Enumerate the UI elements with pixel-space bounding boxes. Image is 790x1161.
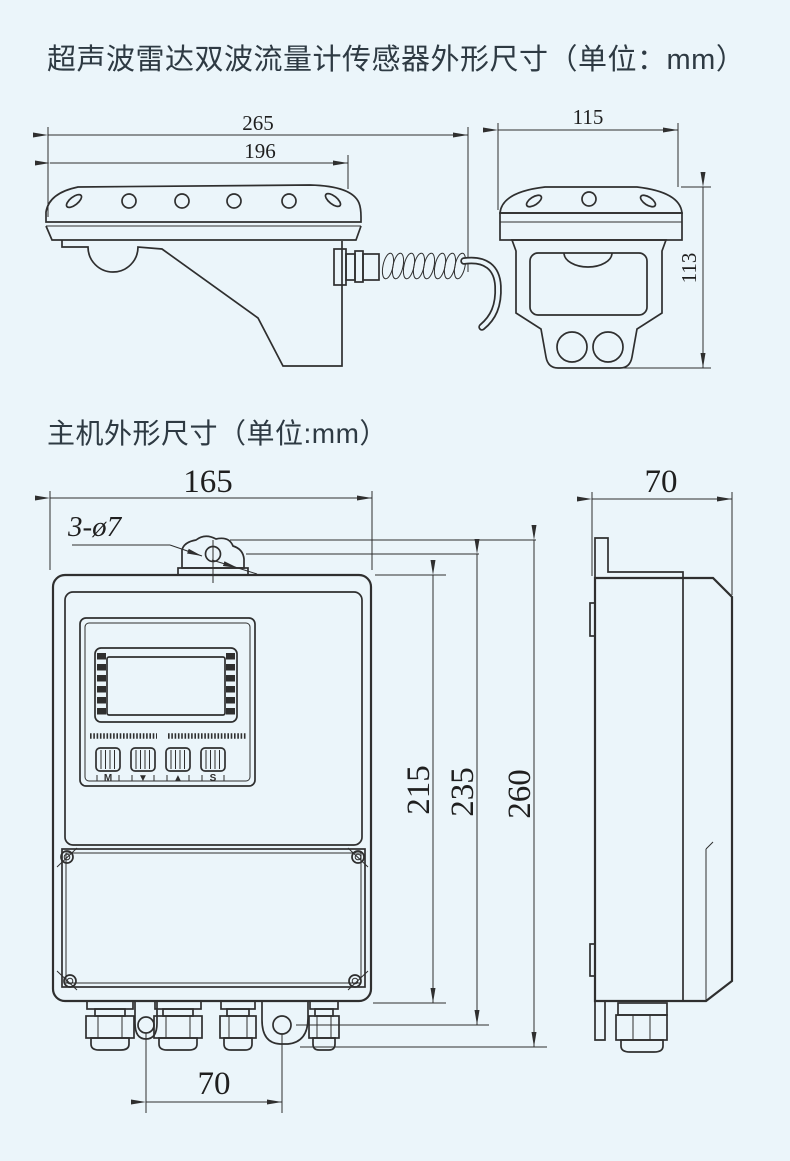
dim-sensor-front-width: 115 [573, 105, 604, 129]
compartment-cover [62, 849, 365, 987]
keypad: M ▼ ▲ S [96, 748, 225, 784]
side-bottom-bracket [595, 1001, 605, 1040]
cap-slot-hole [323, 191, 342, 208]
display-module: M ▼ ▲ S [80, 618, 255, 786]
sensor-front-cap [500, 187, 682, 213]
cover-screw [349, 975, 361, 987]
cable-hook [464, 260, 498, 327]
key-set[interactable] [201, 748, 225, 771]
sensor-front-view: 115 113 [498, 105, 711, 368]
key-label-down: ▼ [138, 773, 148, 784]
dim-sensor-front-height: 113 [677, 253, 701, 284]
side-top-bracket [595, 538, 683, 578]
dim-depth: 70 [645, 464, 678, 500]
key-label-up: ▲ [173, 773, 183, 784]
cable-gland [86, 1001, 134, 1050]
cap-slot-hole [525, 193, 544, 209]
dim-height-body: 215 [401, 765, 437, 815]
sensor-underbody [62, 240, 342, 366]
lcd-fins [97, 653, 235, 715]
cap-hole [175, 194, 189, 208]
key-label-m: M [104, 773, 112, 784]
sensor-front-panel [530, 253, 647, 315]
coiled-cable [380, 252, 467, 280]
hinge-tab [590, 944, 595, 976]
dim-sensor-top-width: 196 [244, 139, 276, 163]
dim-height-mount: 235 [445, 767, 481, 817]
mount-hole [273, 1016, 291, 1034]
terminal-compartment [57, 848, 368, 990]
main-front-view: 165 3-ø7 [50, 464, 547, 1113]
key-down[interactable] [131, 748, 155, 771]
cable-gland [154, 1001, 202, 1050]
sensor-front-body [512, 240, 666, 368]
dim-main-width: 165 [183, 464, 233, 500]
leader-arrow [170, 545, 202, 556]
main-section-title: 主机外形尺寸（单位:mm） [47, 412, 388, 452]
height-dimensions: 215 235 260 [296, 540, 547, 1047]
side-cable-gland [616, 1003, 667, 1052]
sensor-side-view: 265 196 [46, 111, 498, 366]
panel-dome-notch [564, 253, 612, 267]
side-body [595, 578, 732, 1001]
mount-hole [138, 1017, 154, 1033]
sensor-cap [46, 185, 361, 222]
cap-slot-hole [639, 193, 658, 209]
key-menu[interactable] [96, 748, 120, 771]
transducer-eye [557, 332, 587, 362]
main-unit-drawing: 165 3-ø7 [0, 450, 790, 1130]
dim-height-overall: 260 [502, 769, 538, 819]
lcd-bezel [95, 648, 237, 722]
main-side-view: 70 [590, 464, 732, 1052]
enclosure-body [53, 575, 371, 1001]
cap-slot-hole [64, 192, 83, 209]
sensor-drawing: 265 196 [0, 100, 790, 400]
bottom-mounting-lug [262, 1001, 308, 1044]
key-up[interactable] [166, 748, 190, 771]
sensor-section-title: 超声波雷达双波流量计传感器外形尺寸（单位：mm） [47, 36, 745, 78]
dim-mount-holes: 3-ø7 [67, 511, 123, 543]
lcd-screen [107, 657, 225, 715]
cap-hole [122, 194, 136, 208]
dim-bottom-hole-span: 70 [198, 1066, 231, 1102]
key-label-s: S [210, 773, 217, 784]
dim-sensor-overall-width: 265 [242, 111, 274, 135]
hinge-tab [590, 603, 595, 636]
cap-hole [582, 192, 596, 206]
transducer-eye [593, 332, 623, 362]
cap-hole [227, 194, 241, 208]
cable-gland [334, 249, 379, 285]
front-door-panel [65, 592, 362, 845]
cable-gland [220, 1001, 256, 1050]
cap-hole [282, 194, 296, 208]
